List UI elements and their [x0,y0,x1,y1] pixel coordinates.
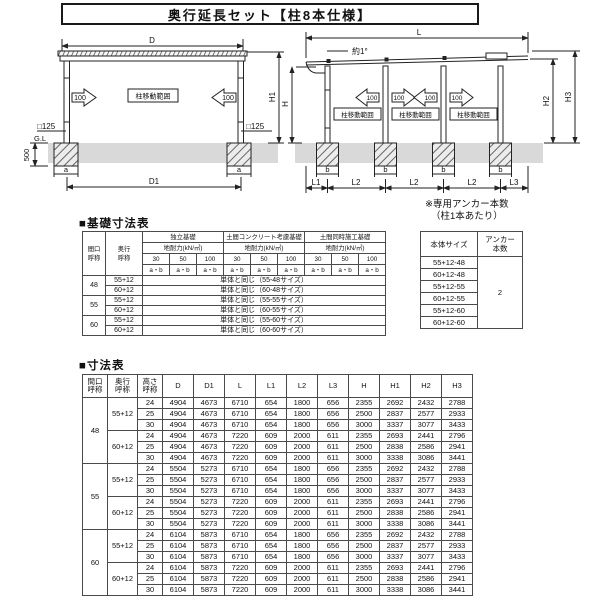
table-row: 2549044673671065418006562500283725772933 [83,409,473,420]
dim-cell: 5504 [163,508,194,519]
dim-cell: 3077 [411,552,442,563]
dim-cell: 1800 [287,530,318,541]
dim-cell: 6104 [163,574,194,585]
roof-beam [60,56,245,61]
dimension-table: 間口 呼称 奥行 呼称 高さ 呼称 D D1 L L1 L2 L3 H H1 H… [82,374,473,596]
foundation-width-label: b [325,165,329,174]
okuyuki-cell: 60+12 [106,306,143,316]
col-subheader-load: 地耐力(kN/㎡) [224,243,305,254]
table-row: 60+12単体と同じ（60-55サイズ） [83,306,386,316]
body-size-cell: 55+12-55 [421,281,478,293]
height-cell: 25 [138,475,163,486]
dim-cell: 2577 [411,409,442,420]
body-size-cell: 60+12-60 [421,317,478,329]
foundation-hatch [433,143,455,166]
height-cell: 30 [138,453,163,464]
height-cell: 25 [138,508,163,519]
height-cell: 30 [138,486,163,497]
dim-cell: 3000 [349,585,380,596]
dim-cell: 7220 [225,497,256,508]
dim-cell: 2441 [411,563,442,574]
okuyuki-cell: 55+12 [108,464,138,497]
table-row: 2549044673722060920006112500283825862941 [83,442,473,453]
dim-cell: 7220 [225,508,256,519]
height-cell: 25 [138,442,163,453]
table-row: 5555+12単体と同じ（55-55サイズ） [83,296,386,306]
dim-cell: 2692 [380,398,411,409]
dim-label-l2: L2 [410,178,419,187]
dim-cell: 5873 [194,541,225,552]
dim-cell: 6104 [163,585,194,596]
dim-cell: 2693 [380,431,411,442]
dim-cell: 5873 [194,574,225,585]
dim-cell: 3000 [349,486,380,497]
height-cell: 30 [138,585,163,596]
dim-cell: 609 [256,508,287,519]
dim-cell: 5273 [194,519,225,530]
dim-cell: 609 [256,453,287,464]
okuyuki-cell: 60+12 [106,326,143,336]
dim-cell: 5273 [194,508,225,519]
dim-cell: 6710 [225,409,256,420]
foundation-width-label: b [441,165,445,174]
dim-cell: 6710 [225,420,256,431]
body-size-cell: 60+12-55 [421,293,478,305]
table-row: 55+12-482 [421,257,523,269]
move-amount: 100 [367,95,378,102]
dim-cell: 3441 [442,585,473,596]
dim-cell: 1800 [287,475,318,486]
foundation-table: 間口 呼称 奥行 呼称 独立基礎 土間コンクリート考慮基礎 土間同時施工基礎 地… [82,231,386,336]
dim-cell: 2432 [411,464,442,475]
technical-diagrams: D 100 100 柱移動範囲 □125 □125 G.L [0,0,600,212]
dim-cell: 654 [256,530,287,541]
dim-cell: 6104 [163,530,194,541]
col-header: H3 [442,375,473,398]
table-row: 4855+12244904467367106541800656235526922… [83,398,473,409]
col-header-maguchi: 間口 呼称 [83,232,106,276]
height-cell: 24 [138,464,163,475]
load-value: 50 [332,254,359,265]
dim-cell: 2432 [411,398,442,409]
ab-header: a・b [359,265,386,276]
load-value: 50 [170,254,197,265]
dim-cell: 3338 [380,585,411,596]
dim-cell: 4673 [194,398,225,409]
dim-cell: 3433 [442,552,473,563]
load-value: 30 [143,254,170,265]
dim-cell: 7220 [225,519,256,530]
col-header: H2 [411,375,442,398]
table-row: 5555+12245504527367106541800656235526922… [83,464,473,475]
dim-cell: 2837 [380,541,411,552]
col-header: D1 [194,375,225,398]
dim-cell: 2933 [442,409,473,420]
col-header-anchor-count: アンカー 本数 [478,232,523,257]
value-cell: 単体と同じ（55-55サイズ） [143,296,386,306]
maguchi-cell: 48 [83,398,108,464]
dim-cell: 7220 [225,442,256,453]
pillar-size-label: □125 [37,122,56,131]
dim-cell: 1800 [287,420,318,431]
foundation-hatch [375,143,397,166]
dim-cell: 2000 [287,519,318,530]
dim-cell: 3000 [349,453,380,464]
dim-cell: 7220 [225,585,256,596]
dim-cell: 1800 [287,552,318,563]
dim-cell: 5273 [194,486,225,497]
col-subheader-load: 地耐力(kN/㎡) [143,243,224,254]
foundation-hatch [227,143,251,166]
col-header: L3 [318,375,349,398]
dim-cell: 4904 [163,398,194,409]
dim-cell: 656 [318,486,349,497]
table-row: 2561045873722060920006112500283825862941 [83,574,473,585]
okuyuki-cell: 60+12 [106,286,143,296]
col-header: H1 [380,375,411,398]
load-value: 100 [197,254,224,265]
body-size-cell: 55+12-60 [421,305,478,317]
dim-cell: 4904 [163,453,194,464]
dim-cell: 656 [318,464,349,475]
dim-cell: 7220 [225,574,256,585]
dim-cell: 2000 [287,431,318,442]
dim-cell: 5504 [163,486,194,497]
col-header: L1 [256,375,287,398]
dim-cell: 609 [256,519,287,530]
dim-cell: 4673 [194,420,225,431]
dim-cell: 3086 [411,453,442,464]
dim-cell: 2586 [411,442,442,453]
dim-cell: 2941 [442,574,473,585]
col-header: L [225,375,256,398]
maguchi-cell: 60 [83,530,108,596]
table-row: 4855+12単体と同じ（55-48サイズ） [83,276,386,286]
dim-cell: 2500 [349,409,380,420]
dim-cell: 7220 [225,431,256,442]
dim-cell: 1800 [287,398,318,409]
foundation-hatch [317,143,339,166]
dim-cell: 2500 [349,508,380,519]
pillar-size-label: □125 [246,122,265,131]
col-header: D [163,375,194,398]
okuyuki-cell: 60+12 [108,563,138,596]
foundation-hatch [490,143,512,166]
dim-cell: 6104 [163,552,194,563]
dim-cell: 2355 [349,464,380,475]
okuyuki-cell: 55+12 [106,276,143,286]
foundation-table-title: ■基礎寸法表 [79,215,149,231]
height-cell: 24 [138,563,163,574]
dim-cell: 3337 [380,486,411,497]
col-header-foundation-type: 土間コンクリート考慮基礎 [224,232,305,243]
table-row: 60+12単体と同じ（60-60サイズ） [83,326,386,336]
height-cell: 24 [138,398,163,409]
ab-header: a・b [170,265,197,276]
height-cell: 24 [138,431,163,442]
dim-cell: 2933 [442,475,473,486]
dim-cell: 2941 [442,508,473,519]
dim-cell: 654 [256,464,287,475]
dim-cell: 4673 [194,453,225,464]
move-amount: 100 [222,95,234,102]
dim-cell: 3433 [442,420,473,431]
table-row: 60+12単体と同じ（60-48サイズ） [83,286,386,296]
foundation-width-label: b [498,165,502,174]
ab-header: a・b [305,265,332,276]
ground-level-label: G.L [34,134,46,143]
dim-cell: 3338 [380,519,411,530]
table-row: 3055045273722060920006113000333830863441 [83,519,473,530]
dim-cell: 2838 [380,442,411,453]
dim-cell: 611 [318,563,349,574]
dim-cell: 2837 [380,475,411,486]
dim-label-l2: L2 [468,178,477,187]
dim-cell: 2000 [287,574,318,585]
table-row: 3055045273671065418006563000333730773433 [83,486,473,497]
table-row: 2561045873671065418006562500283725772933 [83,541,473,552]
table-row: 3049044673671065418006563000333730773433 [83,420,473,431]
height-cell: 30 [138,420,163,431]
ab-header: a・b [197,265,224,276]
dim-cell: 5504 [163,475,194,486]
dim-cell: 5873 [194,563,225,574]
dim-table-title: ■寸法表 [79,357,124,373]
move-range-label: 柱移動範囲 [399,110,432,119]
body-size-cell: 60+12-48 [421,269,478,281]
dim-cell: 1800 [287,464,318,475]
dim-cell: 609 [256,574,287,585]
roof-panel [58,51,247,56]
okuyuki-cell: 55+12 [108,530,138,563]
anchor-note: ※専用アンカー本数 （柱1本あたり） [425,199,509,222]
foundation-hatch [54,143,78,166]
dim-cell: 3077 [411,420,442,431]
dim-cell: 6710 [225,398,256,409]
dim-cell: 656 [318,420,349,431]
col-header: 間口 呼称 [83,375,108,398]
dim-cell: 611 [318,497,349,508]
dim-cell: 3433 [442,486,473,497]
dim-cell: 2000 [287,453,318,464]
height-cell: 25 [138,541,163,552]
dim-cell: 654 [256,552,287,563]
dim-cell: 2693 [380,497,411,508]
dim-cell: 2432 [411,530,442,541]
ab-header: a・b [332,265,359,276]
table-row: 3061045873671065418006563000333730773433 [83,552,473,563]
dim-cell: 609 [256,431,287,442]
dim-cell: 6710 [225,486,256,497]
okuyuki-cell: 55+12 [106,296,143,306]
dim-label-l3: L3 [510,178,519,187]
dim-cell: 2500 [349,475,380,486]
maguchi-cell: 55 [83,464,108,530]
dim-cell: 611 [318,585,349,596]
move-amount: 100 [452,95,463,102]
move-range-label: 柱移動範囲 [457,110,490,119]
table-row: 60+1224490446737220609200061123552693244… [83,431,473,442]
dim-cell: 3338 [380,453,411,464]
col-header-foundation-type: 独立基礎 [143,232,224,243]
dim-label-h3: H3 [564,91,573,102]
dim-cell: 2355 [349,398,380,409]
dim-cell: 4904 [163,409,194,420]
dim-cell: 2500 [349,442,380,453]
dim-cell: 5873 [194,552,225,563]
dim-cell: 609 [256,497,287,508]
dim-cell: 2586 [411,574,442,585]
dim-cell: 3000 [349,420,380,431]
dim-cell: 2500 [349,541,380,552]
dim-cell: 2837 [380,409,411,420]
dim-cell: 609 [256,563,287,574]
dim-cell: 1800 [287,486,318,497]
table-row: 60+1224550452737220609200061123552693244… [83,497,473,508]
dim-cell: 2000 [287,563,318,574]
height-cell: 24 [138,530,163,541]
dim-label-h1: H1 [268,91,277,102]
front-view-diagram: D 100 100 柱移動範囲 □125 □125 G.L [22,36,284,191]
dim-cell: 6710 [225,552,256,563]
height-cell: 30 [138,552,163,563]
dim-cell: 611 [318,519,349,530]
foundation-depth-label: 500 [22,149,31,162]
dim-cell: 2000 [287,508,318,519]
dim-cell: 3077 [411,486,442,497]
dim-cell: 2577 [411,475,442,486]
dim-cell: 2692 [380,530,411,541]
dim-cell: 4904 [163,420,194,431]
dim-cell: 611 [318,508,349,519]
dim-cell: 654 [256,398,287,409]
table-row: 3061045873722060920006113000333830863441 [83,585,473,596]
dim-cell: 2000 [287,442,318,453]
height-cell: 25 [138,574,163,585]
dim-cell: 656 [318,398,349,409]
height-cell: 30 [138,519,163,530]
col-header-foundation-type: 土間同時施工基礎 [305,232,386,243]
value-cell: 単体と同じ（55-48サイズ） [143,276,386,286]
dim-cell: 7220 [225,563,256,574]
dim-cell: 609 [256,585,287,596]
dim-cell: 6710 [225,464,256,475]
dim-cell: 3441 [442,519,473,530]
dim-cell: 6710 [225,530,256,541]
dim-cell: 654 [256,409,287,420]
dim-label-d: D [149,36,155,45]
dim-cell: 2000 [287,585,318,596]
ab-header: a・b [278,265,305,276]
dim-cell: 6104 [163,563,194,574]
table-row: 2555045273671065418006562500283725772933 [83,475,473,486]
dim-cell: 5504 [163,464,194,475]
move-amount: 100 [394,95,405,102]
dim-cell: 2788 [442,530,473,541]
dim-cell: 2838 [380,508,411,519]
ab-header: a・b [251,265,278,276]
dim-cell: 2838 [380,574,411,585]
load-value: 30 [305,254,332,265]
dim-label-l1: L1 [312,178,321,187]
okuyuki-cell: 55+12 [106,316,143,326]
dim-cell: 3337 [380,552,411,563]
dim-cell: 3086 [411,585,442,596]
dim-cell: 4673 [194,442,225,453]
dim-cell: 656 [318,541,349,552]
b-dims: b b b b [317,165,512,177]
dim-cell: 5273 [194,475,225,486]
height-cell: 25 [138,409,163,420]
dim-cell: 2441 [411,497,442,508]
dim-cell: 3337 [380,420,411,431]
dim-cell: 654 [256,420,287,431]
col-header-okuyuki: 奥行 呼称 [106,232,143,276]
dim-cell: 6710 [225,475,256,486]
dim-cell: 3086 [411,519,442,530]
dim-cell: 654 [256,541,287,552]
anchor-note-line2: （柱1本あたり） [425,211,509,223]
okuyuki-cell: 60+12 [108,497,138,530]
anchor-count-cell: 2 [478,257,523,329]
col-header: H [349,375,380,398]
dim-cell: 654 [256,475,287,486]
dim-cell: 4904 [163,442,194,453]
dim-cell: 5873 [194,585,225,596]
table-row: 3049044673722060920006113000333830863441 [83,453,473,464]
anchor-table: 本体サイズ アンカー 本数 55+12-48260+12-4855+12-556… [420,231,523,329]
dim-cell: 5273 [194,497,225,508]
dim-cell: 5273 [194,464,225,475]
value-cell: 単体と同じ（55-60サイズ） [143,316,386,326]
dim-cell: 3441 [442,453,473,464]
dim-cell: 2577 [411,541,442,552]
load-value: 30 [224,254,251,265]
dim-cell: 6710 [225,541,256,552]
value-cell: 単体と同じ（60-48サイズ） [143,286,386,296]
dim-cell: 2796 [442,497,473,508]
dim-cell: 5873 [194,530,225,541]
dim-cell: 2355 [349,431,380,442]
move-amount: 100 [425,95,436,102]
dim-cell: 656 [318,409,349,420]
dim-cell: 3000 [349,519,380,530]
value-cell: 単体と同じ（60-55サイズ） [143,306,386,316]
ab-header: a・b [143,265,170,276]
dim-cell: 5504 [163,497,194,508]
side-view-diagram: L 約1° H 100 100 [281,28,580,193]
move-range-label: 柱移動範囲 [136,92,171,101]
height-cell: 24 [138,497,163,508]
dim-cell: 656 [318,530,349,541]
dim-cell: 2355 [349,563,380,574]
dim-cell: 2000 [287,497,318,508]
table-row: 6055+12246104587367106541800656235526922… [83,530,473,541]
dim-label-h2: H2 [542,95,551,106]
dim-label-l: L [417,28,422,37]
load-value: 100 [359,254,386,265]
table-row: 6055+12単体と同じ（55-60サイズ） [83,316,386,326]
dim-cell: 3000 [349,552,380,563]
body-size-cell: 55+12-48 [421,257,478,269]
dim-cell: 611 [318,453,349,464]
dim-cell: 654 [256,486,287,497]
value-cell: 単体と同じ（60-60サイズ） [143,326,386,336]
okuyuki-cell: 60+12 [108,431,138,464]
maguchi-cell: 55 [83,296,106,316]
dim-cell: 2586 [411,508,442,519]
dim-cell: 611 [318,574,349,585]
